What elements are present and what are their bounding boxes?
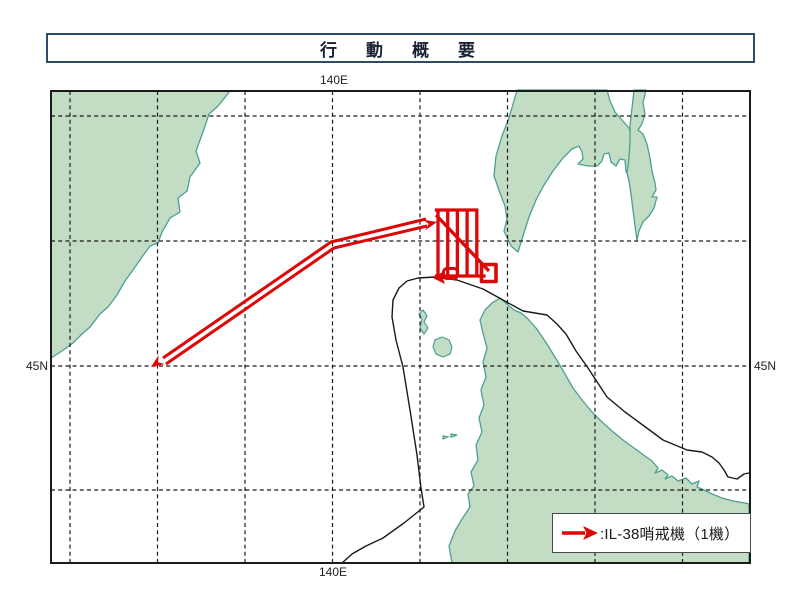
legend-box: :IL-38哨戒機（1機） bbox=[552, 513, 751, 553]
search-pattern-loop bbox=[444, 269, 458, 279]
search-pattern-diagonal bbox=[436, 215, 489, 271]
legend-label: :IL-38哨戒機（1機） bbox=[600, 523, 739, 544]
land-sakhalin-east-lobe bbox=[627, 90, 657, 240]
land-sakhalin-west-lobe bbox=[494, 90, 639, 252]
legend-arrow-head bbox=[583, 526, 598, 540]
map-canvas bbox=[0, 0, 800, 600]
island-rishiri bbox=[433, 337, 452, 357]
small-islets bbox=[443, 434, 457, 439]
land-continent-coast bbox=[51, 91, 230, 358]
screen: 行 動 概 要 140E 45N 45N 140E bbox=[0, 0, 800, 600]
legend-route-arrow-icon bbox=[560, 523, 600, 543]
flight-route-return bbox=[166, 226, 427, 364]
